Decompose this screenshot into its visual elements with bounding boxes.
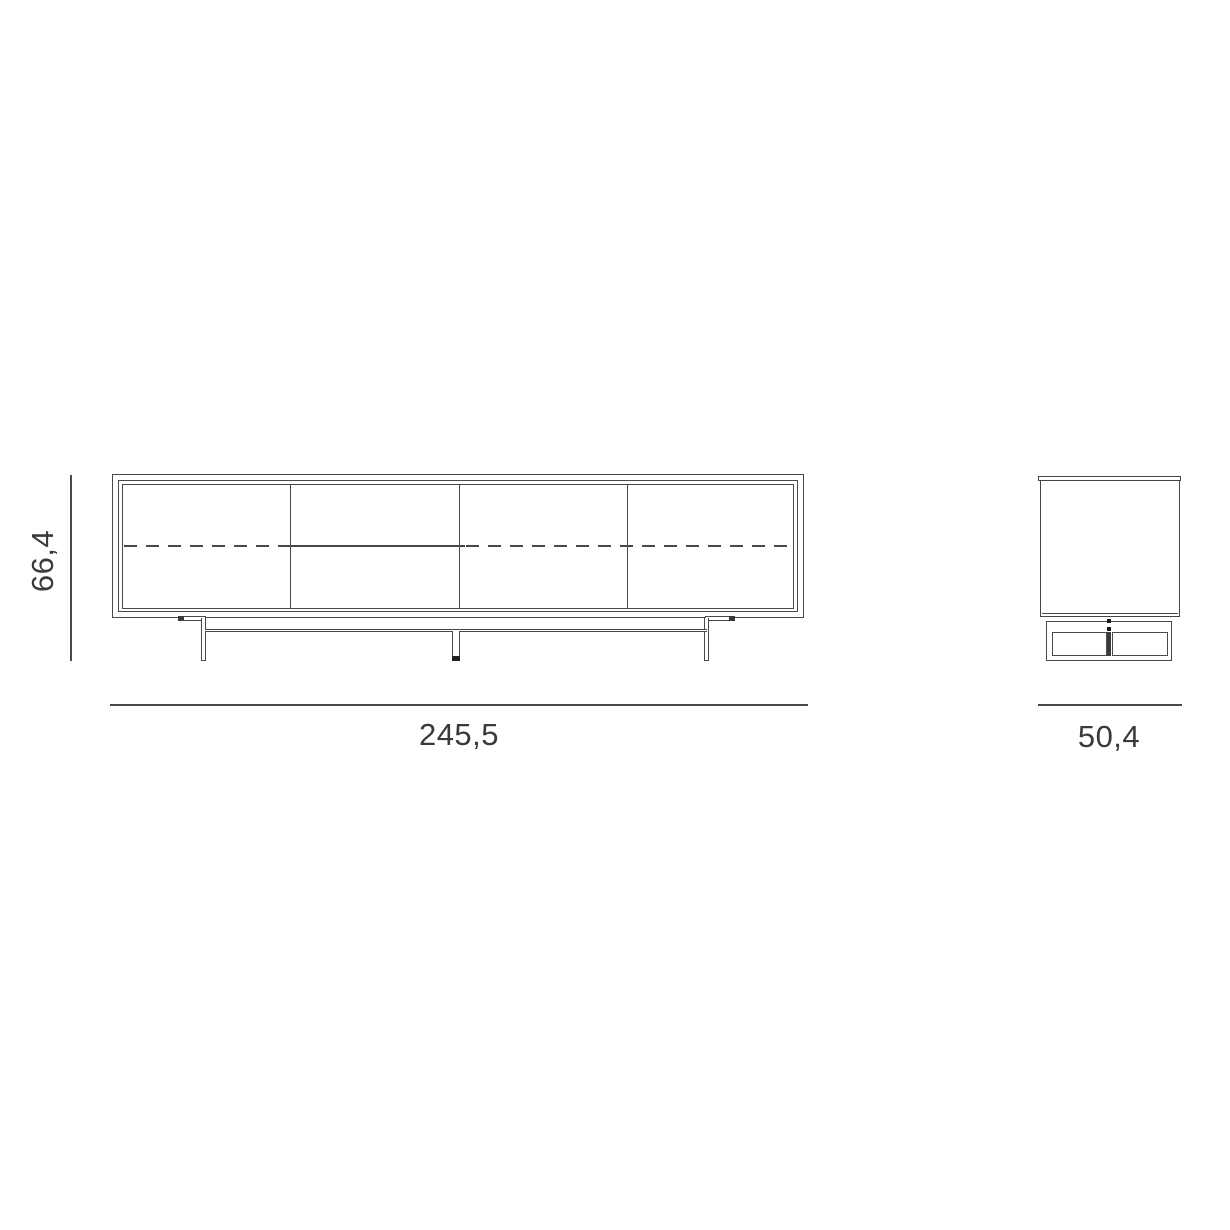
dimension-annotations: 66,4 245,5 50,4 xyxy=(0,0,1230,1230)
depth-dimension-line xyxy=(1038,704,1182,706)
height-dimension-line xyxy=(70,475,72,661)
width-dimension-line xyxy=(110,704,808,706)
height-dimension-label: 66,4 xyxy=(27,501,59,621)
width-dimension-label: 245,5 xyxy=(399,719,519,751)
depth-dimension-label: 50,4 xyxy=(1049,721,1169,753)
technical-drawing-canvas: 66,4 245,5 50,4 xyxy=(0,0,1230,1230)
